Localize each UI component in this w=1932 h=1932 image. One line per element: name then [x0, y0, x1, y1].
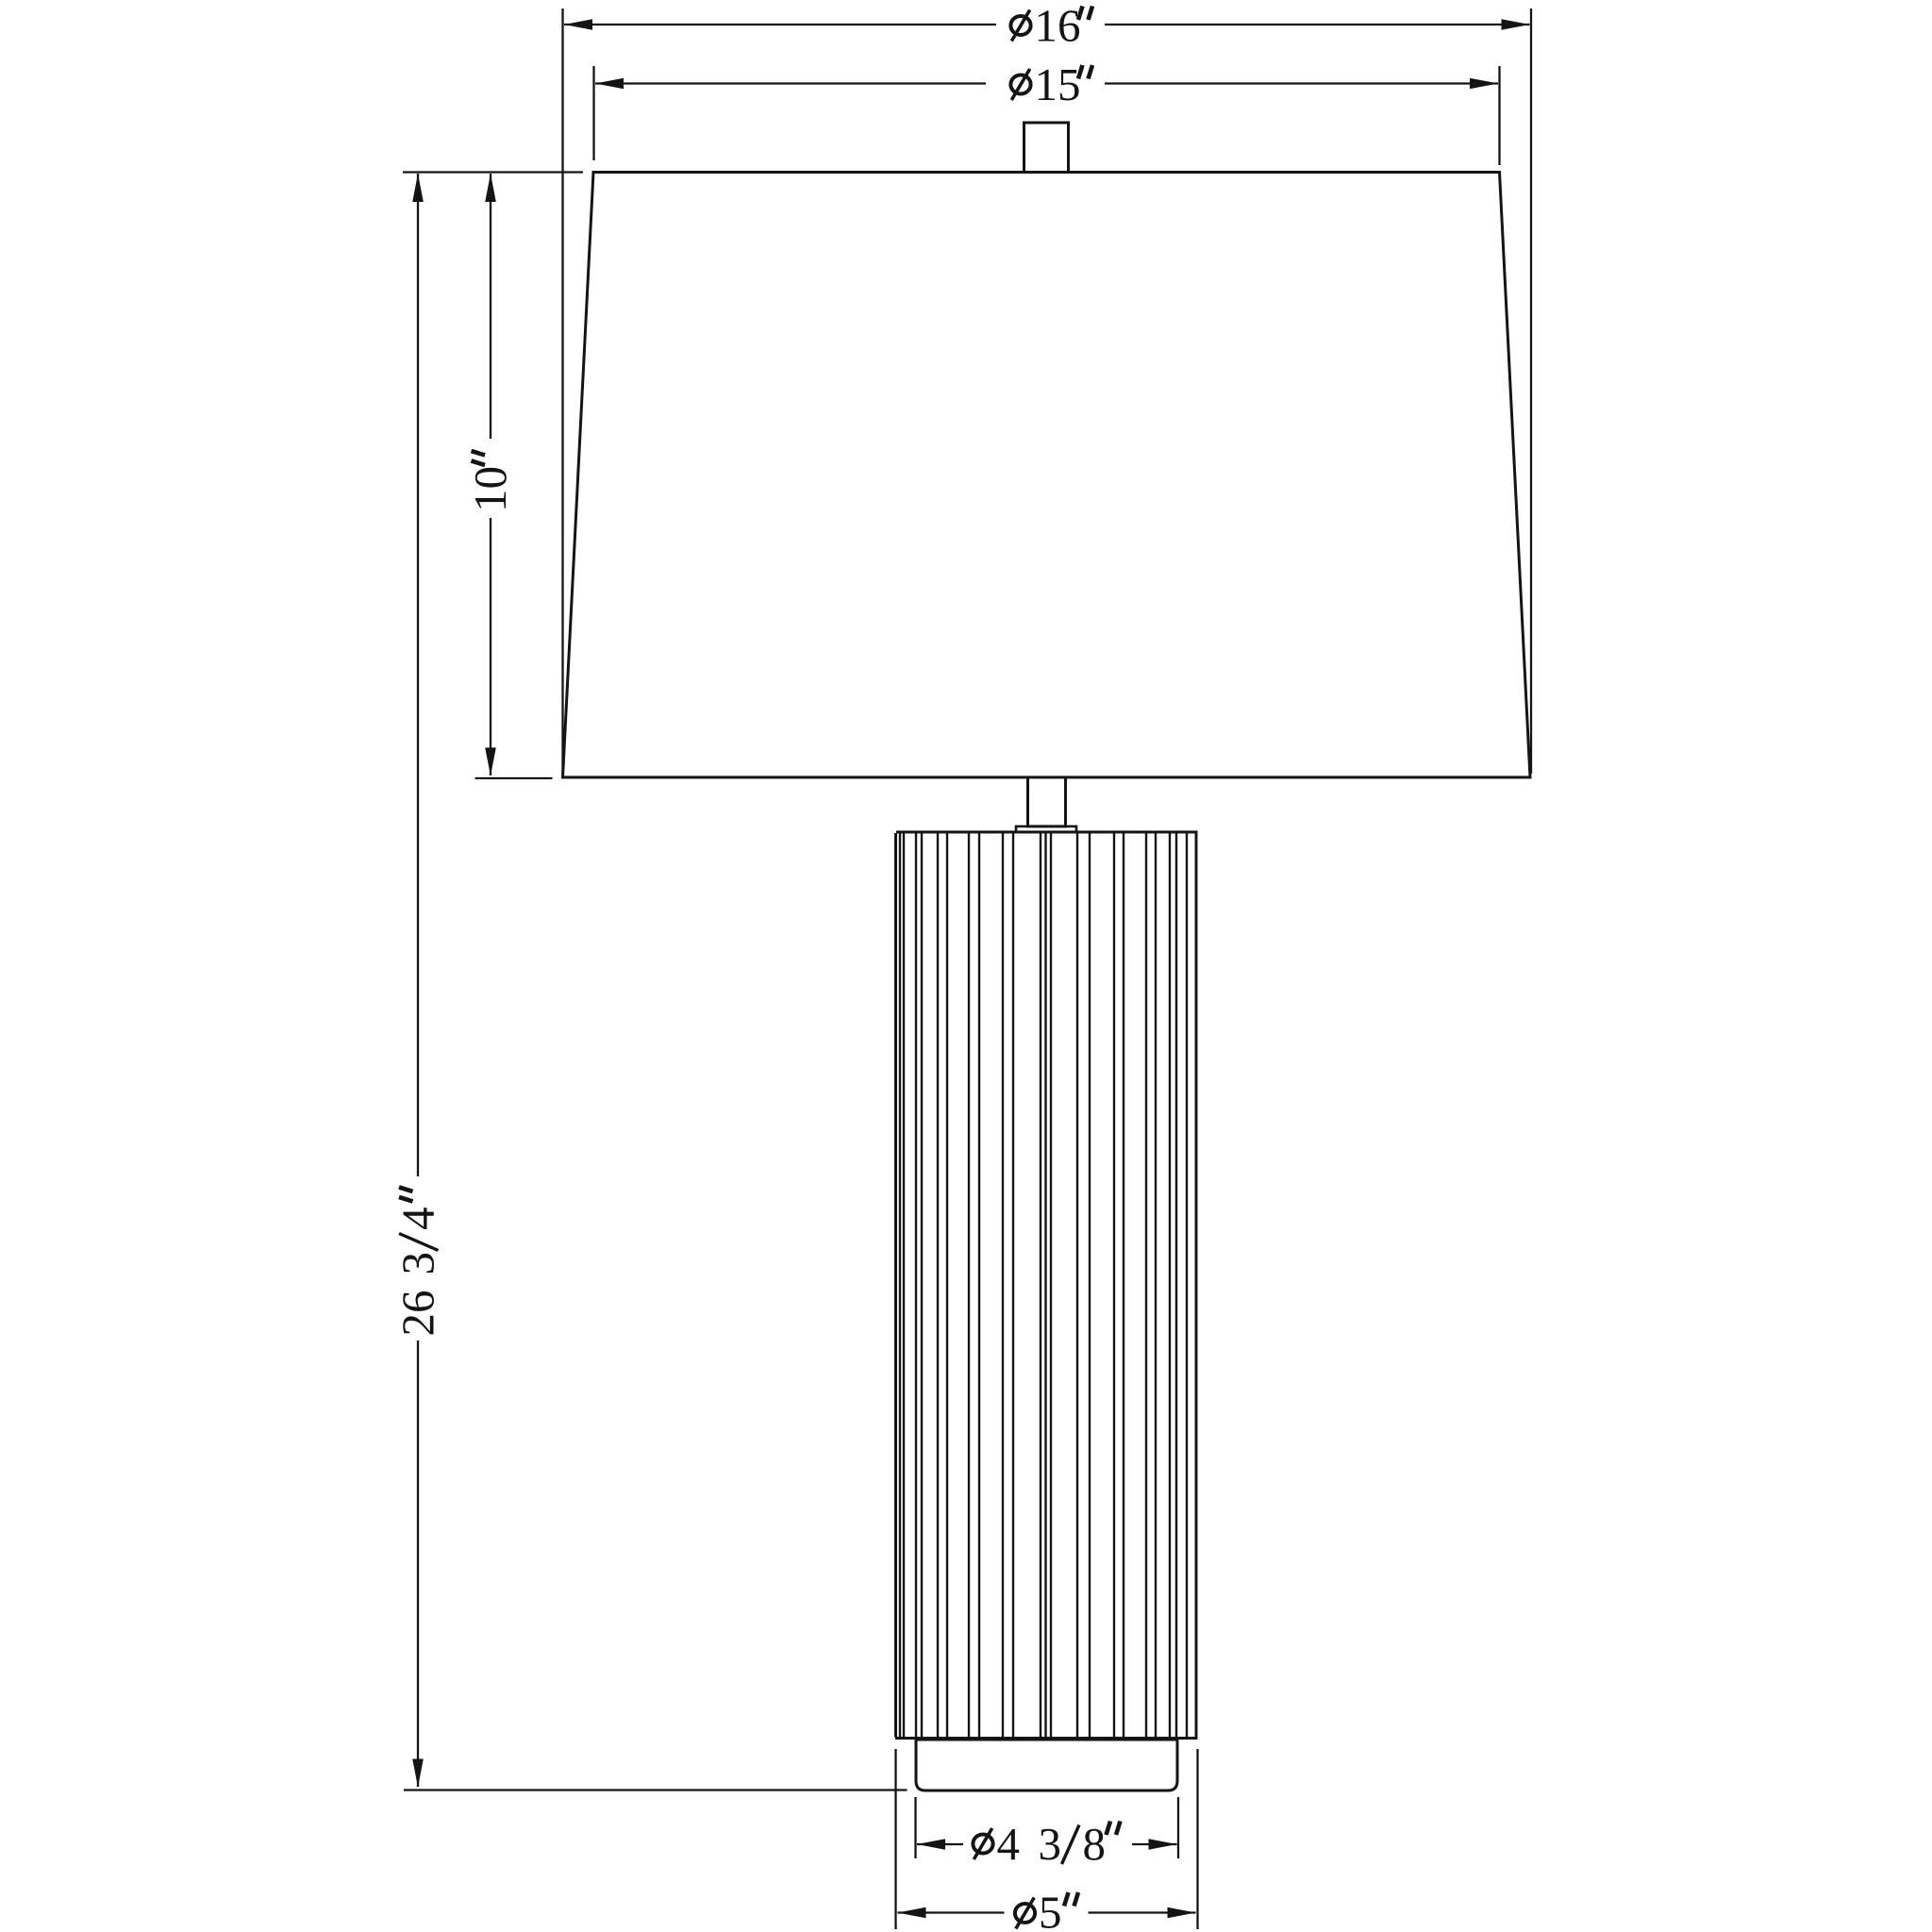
svg-text:15: 15 — [1035, 58, 1081, 110]
svg-text:8: 8 — [1083, 1818, 1107, 1870]
svg-text:26: 26 — [392, 1291, 444, 1337]
svg-text:4: 4 — [997, 1818, 1021, 1870]
svg-text:16: 16 — [1035, 0, 1081, 52]
svg-text:3: 3 — [392, 1252, 444, 1275]
svg-text:4: 4 — [392, 1207, 444, 1231]
svg-text:3: 3 — [1039, 1818, 1062, 1870]
svg-text:5: 5 — [1039, 1887, 1062, 1932]
svg-text:10: 10 — [464, 466, 516, 512]
